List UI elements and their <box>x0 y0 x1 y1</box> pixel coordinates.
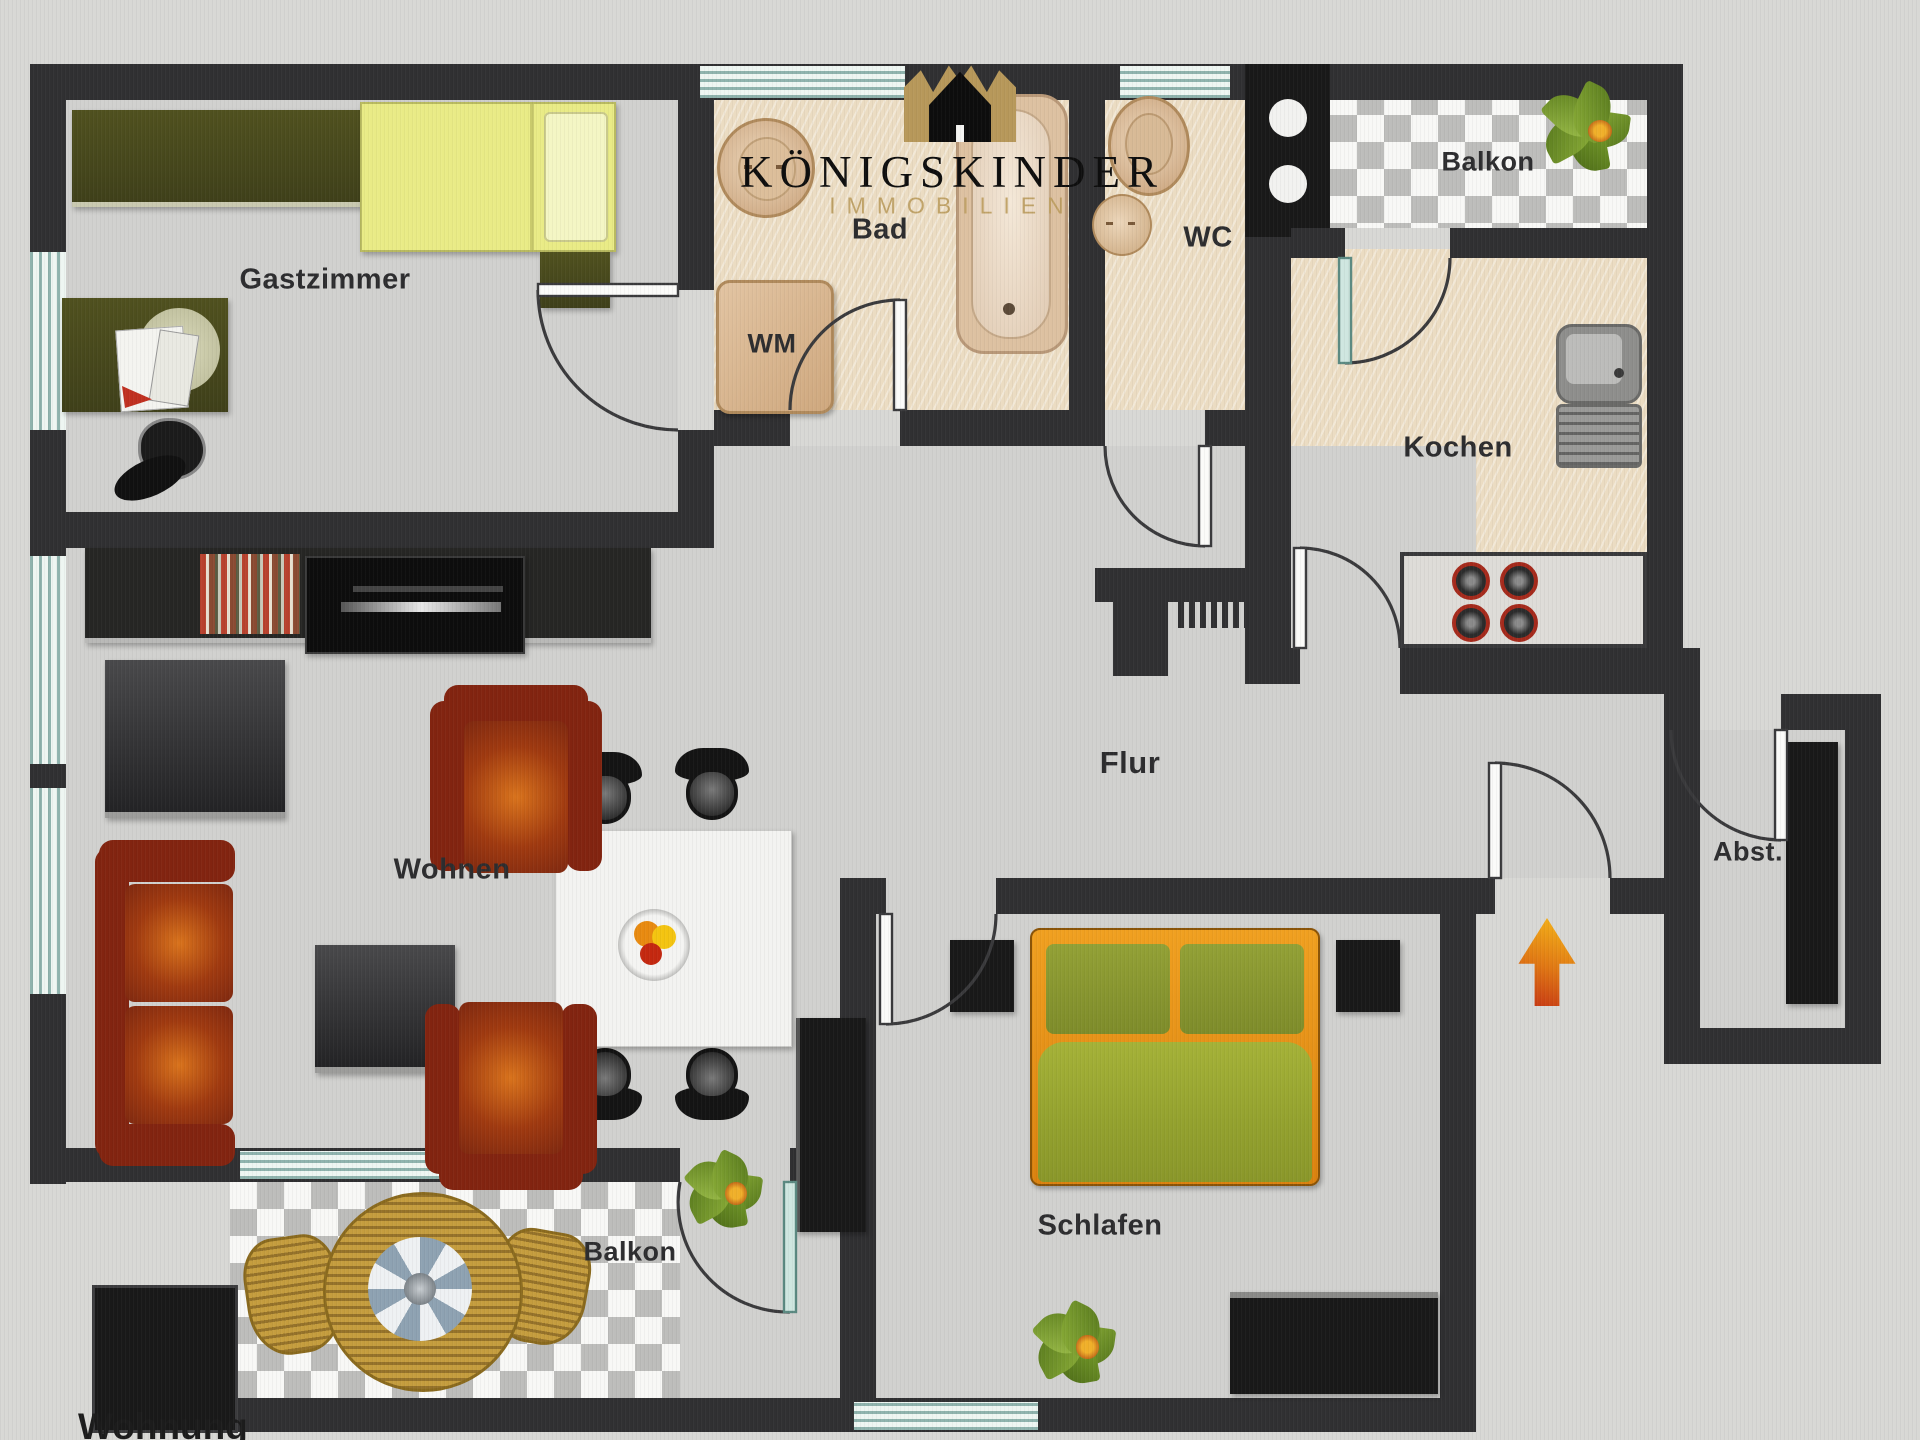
room-label-gastzimmer: Gastzimmer <box>239 264 410 297</box>
logo-subtitle-text: IMMOBILIEN <box>829 193 1074 220</box>
room-label-kochen: Kochen <box>1403 432 1512 465</box>
room-label-wc: WC <box>1183 222 1232 255</box>
room-label-wm: WM <box>748 329 797 360</box>
room-label-flur: Flur <box>1100 745 1161 781</box>
plant-icon <box>1040 1290 1135 1402</box>
room-label-schlafen: Schlafen <box>1038 1210 1163 1243</box>
room-label-abst: Abst. <box>1713 837 1783 868</box>
plant-icon <box>1548 78 1652 182</box>
logo-crown-icon <box>904 64 1016 142</box>
logo-brand-text: KÖNIGSKINDER <box>740 146 1164 198</box>
floor-plan-screenshot: Gastzimmer Bad WM WC Balkon Kochen Flur … <box>0 0 1920 1440</box>
plant-icon <box>692 1140 780 1245</box>
caption-wohnung: Wohnung <box>78 1406 248 1440</box>
room-label-wohnen: Wohnen <box>394 854 511 887</box>
room-label-balkon-bottom: Balkon <box>583 1237 676 1268</box>
room-label-balkon-top: Balkon <box>1441 147 1534 178</box>
